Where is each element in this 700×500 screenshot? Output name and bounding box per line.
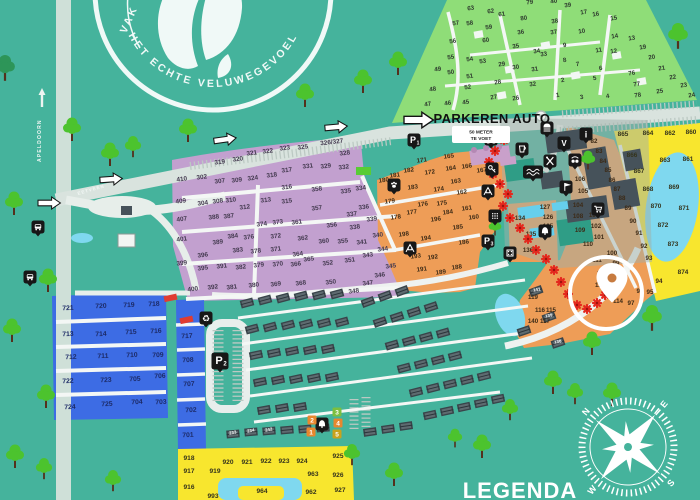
plot-number: 716 <box>150 328 162 335</box>
plot-number: 358 <box>311 185 323 193</box>
plot-number: 341 <box>356 238 368 246</box>
cabin <box>280 425 294 434</box>
plot-number: 701 <box>182 432 194 439</box>
plot-number: 365 <box>303 255 315 263</box>
plot-number: 376 <box>243 233 255 241</box>
plot-number: 366 <box>290 260 302 268</box>
plot-number: 171 <box>416 156 428 164</box>
plot-number: 179 <box>384 197 396 205</box>
plot-number: 97 <box>628 300 635 307</box>
plot-number: 874 <box>678 269 689 276</box>
plot-number: 84 <box>600 158 607 165</box>
plot-number: 91 <box>636 230 643 237</box>
plot-number: 127 <box>540 204 551 211</box>
plot-number: 344 <box>377 245 389 253</box>
plot-number: 724 <box>64 404 76 411</box>
plot-number: 383 <box>232 246 244 254</box>
plot-number: 177 <box>406 208 418 216</box>
plot-number: 334 <box>355 184 367 192</box>
plot-number: 191 <box>416 265 428 273</box>
plot-number: 410 <box>176 175 188 183</box>
plot-number: 336 <box>358 203 370 211</box>
plot-number: 140 <box>528 318 539 325</box>
plot-number: 320 <box>232 155 244 163</box>
plot-number: 384 <box>227 232 239 240</box>
plot-number: 315 <box>281 197 293 205</box>
svg-text:3: 3 <box>335 410 339 417</box>
plot-number: 360 <box>318 237 330 245</box>
plot-number: 331 <box>302 162 314 170</box>
trail-marker-icon <box>516 224 524 232</box>
plot-number: 399 <box>176 259 188 267</box>
plot-number: 927 <box>334 487 345 494</box>
plot-number: 174 <box>433 185 445 193</box>
plot-number: 332 <box>338 163 350 171</box>
plot-number: 919 <box>209 468 220 475</box>
plot-number: 866 <box>627 152 638 159</box>
plot-number: 339 <box>366 215 378 223</box>
plot-number: 351 <box>344 256 356 264</box>
plot-number: 86 <box>609 177 616 184</box>
plot-number: 175 <box>436 199 448 207</box>
plot-number: 964 <box>256 488 267 495</box>
plot-number: 307 <box>214 177 226 185</box>
plot-number: 709 <box>152 352 164 359</box>
plot-number: 83 <box>596 148 603 155</box>
plot-number: 863 <box>660 157 671 164</box>
plot-number: 374 <box>256 220 268 228</box>
plot-number: 92 <box>641 243 648 250</box>
activity-marker: 2 <box>308 416 317 425</box>
plot-number: 710 <box>126 352 138 359</box>
plot-number: 388 <box>208 213 220 221</box>
plot-number: 318 <box>266 171 278 179</box>
plot-number: 706 <box>154 373 166 380</box>
plot-number: 329 <box>320 162 332 170</box>
plot-number: 713 <box>62 331 74 338</box>
plot-number: 346 <box>374 271 386 279</box>
plot-number: 702 <box>185 407 197 414</box>
plot-number: 963 <box>307 471 318 478</box>
plot-number: 873 <box>668 241 679 248</box>
plot-number: 85 <box>605 167 612 174</box>
plot-number: 308 <box>212 197 224 205</box>
plot-number: 192 <box>427 253 439 261</box>
plot-number: 196 <box>430 215 442 223</box>
road-label-apeldoorn: APELDOORN <box>37 119 43 162</box>
plot-number: 865 <box>618 131 629 138</box>
plot-number: 401 <box>176 235 188 243</box>
plot-number: 395 <box>197 264 209 272</box>
plot-number: 328 <box>339 149 351 157</box>
plot-number: 382 <box>235 263 247 271</box>
plot-number: 379 <box>253 261 265 269</box>
grass-patch <box>356 167 371 175</box>
trail-marker-icon <box>506 214 514 222</box>
plot-number: 370 <box>272 260 284 268</box>
plot-number: 321 <box>246 149 258 157</box>
svg-text:V: V <box>561 139 567 148</box>
svg-text:1: 1 <box>417 141 420 147</box>
plot-number: 380 <box>248 281 260 289</box>
plot-number: 356 <box>326 221 338 229</box>
plot-number: 310 <box>225 196 237 204</box>
plot-number: 302 <box>196 173 208 181</box>
plot-number: 117 <box>540 318 551 325</box>
plot-number: 918 <box>183 455 194 462</box>
plot-number: 717 <box>181 333 193 340</box>
plot-number: 872 <box>658 222 669 229</box>
plot-number: 345 <box>385 262 397 270</box>
plot-number: 722 <box>62 378 74 385</box>
plot-number: 186 <box>458 238 470 246</box>
plot-number: 198 <box>398 230 410 238</box>
plot-number: 725 <box>101 401 113 408</box>
plot-number: 355 <box>337 237 349 245</box>
plot-number: 711 <box>97 353 108 360</box>
plot-number: 862 <box>665 130 676 137</box>
svg-text:♻: ♻ <box>202 314 210 324</box>
plot-number: 337 <box>346 210 358 218</box>
trail-marker-icon <box>491 147 499 155</box>
entrance-pond <box>71 233 93 243</box>
svg-text:P: P <box>484 236 490 246</box>
park-map-canvas: 6362618079403917161557585936383710141356… <box>0 0 700 500</box>
svg-text:5: 5 <box>335 432 339 439</box>
plot-number: 860 <box>686 129 697 136</box>
plot-number: 396 <box>197 251 209 259</box>
plot-number: 109 <box>575 227 586 234</box>
plot-number: 108 <box>573 213 584 220</box>
plot-number: 993 <box>207 493 218 500</box>
plot-number: 708 <box>182 357 194 364</box>
plot-number: 925 <box>332 453 343 460</box>
plot-number: 714 <box>95 331 107 338</box>
trail-marker-icon <box>524 235 532 243</box>
plot-number: 105 <box>578 188 589 195</box>
plot-number: 323 <box>279 144 291 152</box>
plot-number: 864 <box>643 130 654 137</box>
plot-number: 316 <box>281 183 293 191</box>
plot-number: 707 <box>183 381 195 388</box>
svg-text:i: i <box>585 130 588 140</box>
plot-number: 381 <box>226 283 238 291</box>
plot-number: 165 <box>443 152 455 160</box>
plot-number: 916 <box>183 484 194 491</box>
plot-number: 920 <box>222 459 233 466</box>
plot-number: 704 <box>131 399 143 406</box>
plot-number: 325 <box>297 143 309 151</box>
plot-number: 104 <box>573 202 584 209</box>
plot-number: 322 <box>262 147 274 155</box>
trail-marker-icon <box>532 246 540 254</box>
plot-number: 869 <box>669 184 680 191</box>
plot-number: 160 <box>468 213 480 221</box>
activity-marker: 1 <box>307 428 316 437</box>
plot-number: 101 <box>594 234 605 241</box>
trail-marker-icon <box>557 278 565 286</box>
plot-number: 378 <box>250 247 262 255</box>
plot-number: 172 <box>424 168 436 176</box>
plot-number: 317 <box>281 166 293 174</box>
plot-number: 161 <box>461 204 473 212</box>
plot-number: 369 <box>270 280 282 288</box>
plot-number: 391 <box>216 262 228 270</box>
plot-number: 392 <box>207 283 219 291</box>
plot-number: 923 <box>278 458 289 465</box>
plot-number: 88 <box>619 195 626 202</box>
trail-marker-icon <box>550 266 558 274</box>
plot-number: 723 <box>100 377 112 384</box>
plot-number: 126 <box>543 214 554 221</box>
plot-number: 352 <box>322 259 334 267</box>
plot-number: 338 <box>349 223 361 231</box>
plot-number: 347 <box>362 279 374 287</box>
plot-number: 712 <box>65 354 77 361</box>
road-apeldoorn <box>56 0 71 500</box>
plot-number: 93 <box>646 255 653 262</box>
plot-number: 324 <box>247 174 259 182</box>
plot-number: 387 <box>223 212 235 220</box>
plot-number: 163 <box>450 177 462 185</box>
plot-number: 340 <box>372 231 384 239</box>
plot-number: 166 <box>461 162 473 170</box>
plot-number: 357 <box>311 204 323 212</box>
parking-area-2-icon: P2 <box>212 353 229 373</box>
plot-number: 868 <box>643 186 654 193</box>
plot-number: 922 <box>260 458 271 465</box>
plot-number: 119 <box>528 294 539 301</box>
plot-number: 867 <box>634 168 645 175</box>
plot-number: 102 <box>591 223 602 230</box>
plot-number: 184 <box>442 208 454 216</box>
plot-number: 720 <box>95 303 107 310</box>
svg-text:P: P <box>215 355 222 367</box>
trail-marker-icon <box>542 255 550 263</box>
plot-number: 134 <box>515 215 526 222</box>
plot-number: 368 <box>295 279 307 287</box>
plot-number: 89 <box>625 205 632 212</box>
plot-number: 372 <box>270 232 282 240</box>
trail-marker-icon <box>496 180 504 188</box>
svg-text:2: 2 <box>310 418 314 425</box>
plot-number: 373 <box>272 218 284 226</box>
trail-marker-icon <box>504 190 512 198</box>
plot-number: 721 <box>62 305 74 312</box>
trail-marker-icon <box>593 299 601 307</box>
plot-number: 183 <box>407 183 419 191</box>
activity-marker: 4 <box>334 419 343 428</box>
plot-number: 185 <box>452 223 464 231</box>
trail-marker-icon <box>583 305 591 313</box>
plot-number: 309 <box>231 176 243 184</box>
plot-number: 407 <box>176 215 188 223</box>
activity-marker: 5 <box>333 430 342 439</box>
plot-number: 162 <box>456 188 468 196</box>
plot-number: 926 <box>332 472 343 479</box>
plot-number: 400 <box>187 285 199 293</box>
plot-number: 718 <box>148 301 160 308</box>
park-map: 6362618079403917161557585936383710141356… <box>0 0 700 500</box>
plot-number: 181 <box>389 171 401 179</box>
plot-number: 703 <box>155 399 167 406</box>
plot-number: 178 <box>390 213 402 221</box>
plot-number: 182 <box>403 166 415 174</box>
plot-number: 705 <box>129 376 141 383</box>
plot-number: 348 <box>348 287 360 295</box>
trail-marker-icon <box>499 202 507 210</box>
activity-marker: 3 <box>333 408 342 417</box>
plot-number: 164 <box>445 164 457 172</box>
svg-text:4: 4 <box>336 421 340 428</box>
plot-number: 350 <box>325 278 337 286</box>
plot-number: 921 <box>241 459 252 466</box>
plot-number: 94 <box>656 278 663 285</box>
plot-number: 389 <box>212 238 224 246</box>
svg-text:1: 1 <box>309 430 313 437</box>
plot-number: 312 <box>239 203 251 211</box>
plot-number: 90 <box>630 218 637 225</box>
plot-number: 917 <box>183 468 194 475</box>
svg-text:3: 3 <box>491 242 494 248</box>
plot-number: 194 <box>420 234 432 242</box>
plot-number: 304 <box>197 199 209 207</box>
plot-number: 371 <box>270 245 282 253</box>
plot-number: 95 <box>647 289 654 296</box>
plot-number: 176 <box>417 200 429 208</box>
plot-number: 189 <box>435 268 447 276</box>
plot-number: 409 <box>175 197 187 205</box>
svg-text:P: P <box>410 135 416 145</box>
plot-number: 319 <box>214 158 226 166</box>
plot-number: 110 <box>583 241 594 248</box>
plot-number: 335 <box>340 187 352 195</box>
parking-sign-title: PARKEREN AUTO <box>434 111 551 126</box>
parking-sign-sub1: 50 METER <box>469 130 493 136</box>
plot-number: 924 <box>296 458 307 465</box>
legend-title: LEGENDA <box>463 478 578 500</box>
plot-number: 188 <box>451 263 463 271</box>
plot-number: 861 <box>683 156 694 163</box>
plot-number: 79 <box>526 0 534 7</box>
plot-number: 313 <box>260 196 272 204</box>
plot-number: 343 <box>362 251 374 259</box>
plot-number: 870 <box>651 203 662 210</box>
plot-number: 962 <box>305 489 316 496</box>
plot-number: 361 <box>291 218 303 226</box>
plot-number: 106 <box>575 176 586 183</box>
plot-number: 719 <box>123 302 135 309</box>
plot-number: 87 <box>614 186 621 193</box>
plot-number: 715 <box>125 329 137 336</box>
parking-sign-sub2: TE VOET <box>471 136 492 142</box>
plot-number: 871 <box>679 205 690 212</box>
plot-number: 362 <box>297 234 309 242</box>
